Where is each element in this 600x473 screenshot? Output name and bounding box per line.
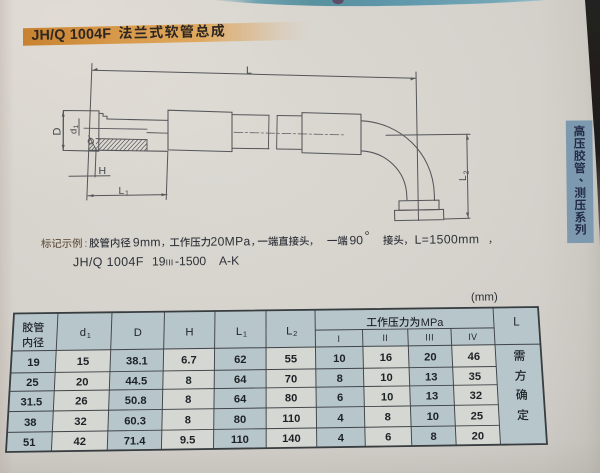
svg-text:8: 8 bbox=[185, 415, 191, 427]
svg-text:L=1500mm: L=1500mm bbox=[414, 232, 479, 247]
svg-text:80: 80 bbox=[285, 393, 297, 405]
svg-text::: : bbox=[84, 238, 87, 250]
svg-text:62: 62 bbox=[234, 354, 246, 366]
svg-text:140: 140 bbox=[282, 433, 301, 445]
svg-text:6: 6 bbox=[337, 392, 343, 404]
svg-text:13: 13 bbox=[426, 391, 438, 403]
svg-text:60.3: 60.3 bbox=[124, 415, 146, 427]
svg-text:20MPa: 20MPa bbox=[210, 234, 250, 248]
svg-text:50.8: 50.8 bbox=[125, 395, 147, 407]
svg-text:10: 10 bbox=[380, 372, 392, 384]
svg-text:(mm): (mm) bbox=[471, 291, 498, 303]
svg-text:JH/Q 1004F: JH/Q 1004F bbox=[31, 26, 111, 44]
svg-text:71.4: 71.4 bbox=[124, 435, 147, 447]
svg-text:35: 35 bbox=[469, 371, 481, 383]
svg-text:32: 32 bbox=[74, 416, 86, 428]
svg-text:III: III bbox=[166, 257, 174, 267]
svg-text:20: 20 bbox=[472, 430, 484, 442]
svg-text:1: 1 bbox=[73, 125, 80, 129]
svg-text:10: 10 bbox=[381, 391, 393, 403]
svg-text:32: 32 bbox=[470, 390, 482, 402]
svg-text:16: 16 bbox=[380, 352, 392, 364]
svg-text:MPa: MPa bbox=[421, 317, 445, 329]
svg-text:64: 64 bbox=[234, 374, 247, 386]
svg-text:1: 1 bbox=[243, 330, 247, 339]
svg-text:19: 19 bbox=[27, 357, 39, 369]
svg-text:110: 110 bbox=[282, 413, 300, 425]
svg-text:L: L bbox=[246, 65, 252, 77]
svg-text:25: 25 bbox=[26, 377, 38, 389]
svg-text:90: 90 bbox=[349, 233, 363, 247]
svg-text:70: 70 bbox=[285, 374, 297, 386]
svg-text:IV: IV bbox=[468, 332, 477, 342]
svg-text:8: 8 bbox=[185, 394, 191, 406]
svg-text:64: 64 bbox=[234, 393, 247, 405]
svg-text:2: 2 bbox=[293, 329, 297, 338]
svg-text:D: D bbox=[52, 128, 64, 136]
svg-text:8: 8 bbox=[385, 412, 391, 424]
svg-text:d: d bbox=[80, 327, 86, 339]
svg-text:L: L bbox=[458, 175, 469, 181]
svg-text:d: d bbox=[69, 129, 80, 134]
svg-text:25: 25 bbox=[471, 410, 483, 422]
svg-text:III: III bbox=[425, 333, 434, 343]
svg-text:46: 46 bbox=[468, 351, 480, 363]
svg-text:26: 26 bbox=[75, 396, 87, 408]
svg-text:1: 1 bbox=[125, 190, 129, 197]
svg-text:110: 110 bbox=[231, 434, 249, 446]
svg-text:13: 13 bbox=[425, 372, 437, 384]
svg-text:42: 42 bbox=[73, 436, 85, 448]
svg-text:I: I bbox=[338, 334, 341, 344]
svg-text:4: 4 bbox=[338, 432, 345, 444]
svg-text:6: 6 bbox=[385, 432, 391, 444]
svg-text:4: 4 bbox=[337, 412, 344, 424]
svg-text:D: D bbox=[134, 327, 142, 339]
svg-text:15: 15 bbox=[77, 356, 89, 368]
svg-text:38: 38 bbox=[24, 417, 36, 429]
svg-text:1: 1 bbox=[87, 331, 91, 340]
svg-text:L: L bbox=[513, 317, 520, 329]
svg-text:20: 20 bbox=[424, 352, 436, 364]
svg-text:JH/Q 1004F: JH/Q 1004F bbox=[73, 255, 144, 270]
svg-text:31.5: 31.5 bbox=[21, 396, 43, 408]
svg-text:L: L bbox=[286, 325, 292, 337]
svg-text:8: 8 bbox=[337, 373, 343, 385]
svg-text:19: 19 bbox=[152, 254, 166, 268]
svg-text:20: 20 bbox=[76, 376, 88, 388]
svg-text:9.5: 9.5 bbox=[180, 435, 196, 447]
svg-text:6.7: 6.7 bbox=[181, 355, 197, 367]
svg-text:80: 80 bbox=[234, 414, 246, 426]
svg-text:55: 55 bbox=[285, 353, 297, 365]
svg-text:38.1: 38.1 bbox=[126, 355, 148, 367]
svg-text:-1500: -1500 bbox=[175, 254, 207, 268]
svg-text:H: H bbox=[99, 165, 107, 177]
svg-text:L: L bbox=[119, 186, 125, 197]
svg-text:44.5: 44.5 bbox=[125, 376, 147, 388]
svg-text:H: H bbox=[185, 326, 193, 338]
svg-text:2: 2 bbox=[463, 171, 470, 175]
svg-text:°: ° bbox=[364, 228, 369, 243]
svg-text:51: 51 bbox=[23, 437, 35, 449]
svg-text:L: L bbox=[236, 326, 242, 338]
svg-text:8: 8 bbox=[185, 375, 191, 387]
svg-text:8: 8 bbox=[430, 431, 436, 443]
svg-text:10: 10 bbox=[333, 353, 345, 365]
svg-text:9mm: 9mm bbox=[133, 235, 161, 249]
svg-text:10: 10 bbox=[427, 411, 439, 423]
svg-text:II: II bbox=[382, 333, 388, 343]
svg-text:A-K: A-K bbox=[219, 254, 239, 268]
